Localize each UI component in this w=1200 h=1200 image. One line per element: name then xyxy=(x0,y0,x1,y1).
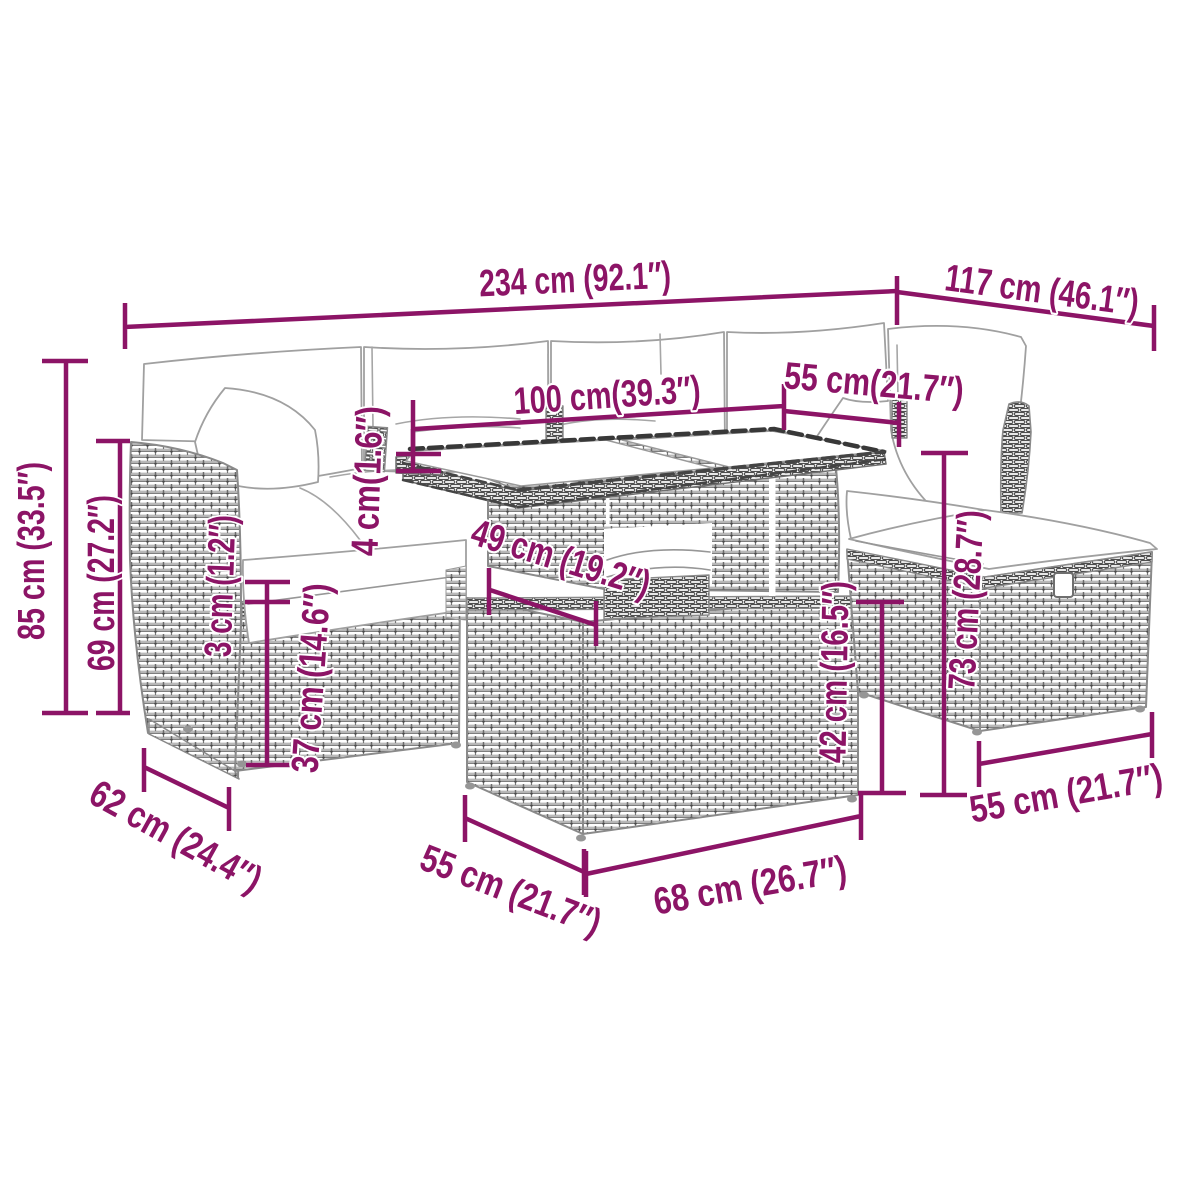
svg-text:42 cm (16.5″): 42 cm (16.5″) xyxy=(812,581,857,764)
svg-text:85 cm (33.5″): 85 cm (33.5″) xyxy=(11,462,53,640)
svg-text:3 cm (1.2″): 3 cm (1.2″) xyxy=(198,514,245,657)
svg-text:234 cm (92.1″): 234 cm (92.1″) xyxy=(478,255,672,306)
svg-text:4 cm(1.6″): 4 cm(1.6″) xyxy=(344,405,391,556)
svg-text:69 cm (27.2″): 69 cm (27.2″) xyxy=(81,495,123,671)
